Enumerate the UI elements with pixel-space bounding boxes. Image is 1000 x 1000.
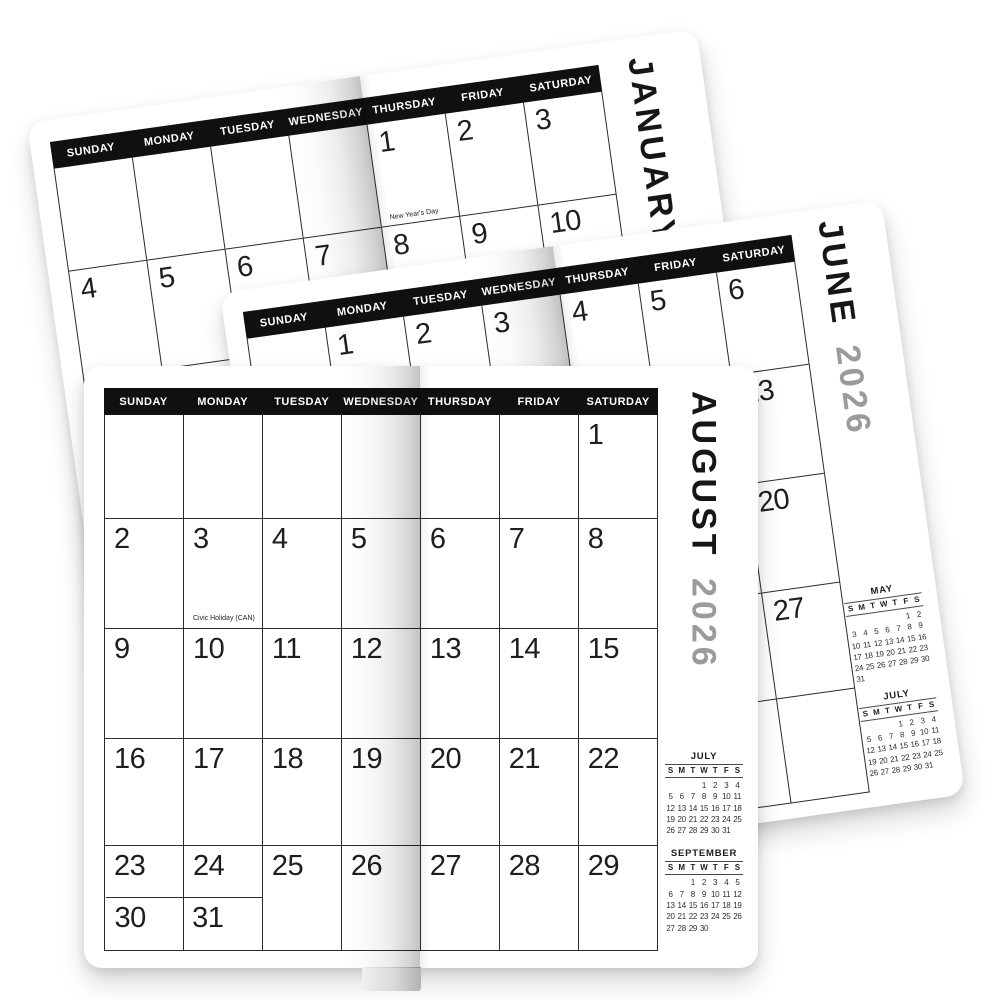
date-cell: 5 [341,519,420,628]
year-label: 2026 [684,578,722,670]
day-header: SATURDAY [579,388,658,415]
holiday-note: Civic Holiday (CAN) [193,615,255,622]
mini-week-row: 12131415161718 [665,803,743,814]
mini-date [676,780,687,791]
date-cell: 15 [578,629,657,738]
mini-date: 24 [721,814,732,825]
mini-date: 24 [710,911,721,922]
mini-date [921,664,934,677]
date-number: 17 [193,745,224,774]
mini-date: 8 [687,889,698,900]
mini-date: 14 [687,803,698,814]
date-number: 13 [430,635,461,664]
mini-date: 23 [710,814,721,825]
mini-date: 4 [721,877,732,888]
mini-date [676,877,687,888]
mini-day-letter: T [687,766,698,775]
mini-day-letter: S [925,699,937,709]
date-number: 4 [79,274,99,305]
mini-date: 31 [721,825,732,836]
mini-date [687,780,698,791]
date-cell: 28 [499,846,578,950]
page-title: JUNE2026 [810,218,877,438]
date-number: 22 [588,745,619,774]
date-cell: 18 [262,739,341,845]
mini-date: 12 [732,889,743,900]
mini-date: 26 [665,825,676,836]
mini-day-letter: S [665,766,676,775]
date-cell: 19 [341,739,420,845]
day-header: SUNDAY [104,388,183,415]
mini-date [710,923,721,934]
date-number: 27 [430,852,461,881]
date-number: 6 [726,275,746,306]
date-cell-overflow: 30 [106,897,185,946]
mini-day-letter: S [911,594,923,604]
mini-date: 10 [710,889,721,900]
date-number: 8 [588,525,604,554]
date-number: 11 [272,635,301,664]
mini-date: 29 [698,825,709,836]
page-title: AUGUST2026 [684,391,721,669]
mini-date: 17 [710,900,721,911]
mini-date: 5 [732,877,743,888]
mini-date: 13 [676,803,687,814]
date-cell [420,415,499,518]
date-number: 23 [114,852,145,881]
mini-date: 27 [665,923,676,934]
mini-calendar-title: JULY [665,751,743,764]
date-number: 18 [272,745,303,774]
date-cell: 11 [262,629,341,738]
mini-date: 6 [676,791,687,802]
week-row: 16 17 18 19 [105,738,657,845]
date-cell: 25 [262,846,341,950]
mini-date: 16 [698,900,709,911]
date-cell [132,147,225,260]
date-number: 3 [193,525,209,554]
date-cell-overflow: 31 [183,897,262,946]
mini-date [732,825,743,836]
date-number: 7 [313,241,333,272]
date-number: 2 [455,116,475,147]
mini-date: 16 [710,803,721,814]
date-cell: 27 [761,583,854,699]
date-number: 28 [509,852,540,881]
mini-day-letter: F [721,863,732,872]
date-cell [210,136,303,249]
mini-date: 11 [732,791,743,802]
date-number: 5 [157,263,177,294]
date-cell: 29 [578,846,657,950]
mini-date: 28 [687,825,698,836]
mini-date: 7 [676,889,687,900]
mini-date: 14 [676,900,687,911]
date-number: 4 [570,297,590,328]
date-cell [183,415,262,518]
mini-date: 8 [698,791,709,802]
date-cell: 16 [105,739,183,845]
date-cell: 12 [341,629,420,738]
mini-day-letter: F [721,766,732,775]
date-number: 31 [192,904,223,933]
date-cell: 2 [105,519,183,628]
mini-date: 23 [698,911,709,922]
mini-weeks: 1234 567891011 12131415161718 [861,711,946,780]
mini-date: 9 [710,791,721,802]
mini-weeks: 12345 6789101112 13141516171819 [665,875,743,933]
mini-calendar: JULY SMTWTFS 1234 56789101 [665,751,743,836]
mini-date: 2 [710,780,721,791]
mini-day-letter: M [676,766,687,775]
date-cell [262,415,341,518]
mini-date: 2 [698,877,709,888]
date-number: 16 [114,745,145,774]
date-cell: 8 [578,519,657,628]
month-title: JANUARY [620,55,684,250]
date-number: 15 [588,635,619,664]
date-cell: 27 [420,846,499,950]
mini-date: 29 [687,923,698,934]
date-number: 1 [377,127,397,158]
date-number: 3 [492,308,512,339]
date-cell: 7 [499,519,578,628]
mini-day-letter: W [698,863,709,872]
mini-week-row: 13141516171819 [665,900,743,911]
page-title: JANUARY [620,55,684,249]
mini-date [665,877,676,888]
mini-day-letter: T [710,863,721,872]
mini-date: 17 [721,803,732,814]
date-number: 19 [351,745,382,774]
date-number: 21 [509,745,540,774]
date-number: 25 [272,852,303,881]
mini-date: 21 [676,911,687,922]
mini-date: 20 [665,911,676,922]
day-header-row: SUNDAYMONDAYTUESDAYWEDNESDAYTHURSDAYFRID… [104,388,658,415]
mini-day-letter: M [676,863,687,872]
mini-day-letters: SMTWTFS [665,764,743,778]
date-number: 1 [336,330,356,361]
mini-date: 10 [721,791,732,802]
mini-date: 9 [698,889,709,900]
date-number: 26 [351,852,382,881]
date-cell: 6 [716,262,809,375]
date-cell: 4 [262,519,341,628]
mini-date: 22 [698,814,709,825]
mini-week-row: 1234 [665,780,743,791]
date-cell: 3 [523,92,616,205]
date-number: 1 [588,421,604,450]
week-row: 2 3 4 5 [105,518,657,628]
booklet-spine-tab [362,967,421,991]
mini-calendar: JULY SMTWTFS 1234 56789101 [857,684,946,780]
date-cell [776,689,869,803]
month-title: AUGUST [684,391,722,559]
day-header: TUESDAY [262,388,341,415]
mini-date [934,758,947,771]
date-number: 3 [533,105,553,136]
date-number: 6 [430,525,446,554]
date-number: 5 [648,286,668,317]
date-number: 29 [588,852,619,881]
mini-day-letter: T [710,766,721,775]
day-header: WEDNESDAY [341,388,420,415]
mini-week-row: 6789101112 [665,889,743,900]
mini-date: 1 [698,780,709,791]
date-number: 7 [509,525,525,554]
day-header: THURSDAY [420,388,499,415]
date-cell [288,125,381,238]
month-grid: 1 2 3 4 [104,415,658,951]
date-cell: 22 [578,739,657,845]
mini-date: 19 [732,900,743,911]
date-number: 5 [351,525,367,554]
date-number: 6 [235,252,255,283]
mini-week-row: 262728293031 [665,825,743,836]
mini-date: 3 [721,780,732,791]
day-header: FRIDAY [499,388,578,415]
mini-date: 25 [721,911,732,922]
date-cell: 1 [366,114,459,227]
week-row: 9 10 11 12 [105,628,657,738]
page-august: SUNDAYMONDAYTUESDAYWEDNESDAYTHURSDAYFRID… [84,366,758,968]
date-cell: 20 [746,474,839,593]
date-cell: 1 [578,415,657,518]
date-number: 20 [756,485,791,518]
mini-date: 22 [687,911,698,922]
date-number: 20 [430,745,461,774]
mini-date: 26 [732,911,743,922]
mini-date: 3 [710,877,721,888]
mini-date: 25 [732,814,743,825]
date-number: 12 [351,635,382,664]
mini-calendar: MAY SMTWTFS 12 3456789 [842,579,933,686]
mini-date [732,923,743,934]
date-number: 4 [272,525,288,554]
mini-day-letter: S [732,863,743,872]
date-cell: 20 [420,739,499,845]
mini-date [665,780,676,791]
date-cell: 4 [69,261,161,380]
date-number: 8 [392,230,412,261]
mini-date: 20 [676,814,687,825]
mini-date: 13 [665,900,676,911]
mini-date: 7 [687,791,698,802]
date-number: 2 [414,319,434,350]
date-cell: 10 [183,629,262,738]
date-cell [499,415,578,518]
date-number: 9 [470,219,490,250]
date-cell: 17 [183,739,262,845]
mini-calendar-title: SEPTEMBER [665,848,743,861]
mini-date: 28 [676,923,687,934]
date-cell [55,158,147,271]
mini-date: 12 [665,803,676,814]
mini-weeks: 12 3456789 10111213141516 [846,606,933,686]
mini-day-letter: S [665,863,676,872]
mini-week-row: 19202122232425 [665,814,743,825]
mini-date: 11 [721,889,732,900]
date-cell: 14 [499,629,578,738]
mini-date: 19 [665,814,676,825]
date-number: 30 [115,904,146,933]
date-cell: 3 [183,519,262,628]
mini-date: 4 [732,780,743,791]
mini-date: 30 [698,923,709,934]
mini-day-letter: W [698,766,709,775]
mini-date: 15 [698,803,709,814]
mini-date: 18 [732,803,743,814]
mini-date: 6 [665,889,676,900]
date-number: 10 [548,206,583,239]
day-header: MONDAY [183,388,262,415]
mini-week-row: 12345 [665,877,743,888]
date-cell [341,415,420,518]
mini-week-row: 27282930 [665,923,743,934]
mini-date: 27 [676,825,687,836]
year-label: 2026 [828,342,878,438]
date-cell: 13 [420,629,499,738]
mini-day-letters: SMTWTFS [665,861,743,875]
date-cell: 21 [499,739,578,845]
mini-date [721,923,732,934]
mini-date: 5 [665,791,676,802]
mini-date: 15 [687,900,698,911]
mini-calendar: SEPTEMBER SMTWTFS 12345 67 [665,848,743,933]
date-cell: 26 [341,846,420,950]
date-cell: 9 [105,629,183,738]
mini-date: 30 [710,825,721,836]
date-number: 24 [193,852,224,881]
date-number: 2 [114,525,130,554]
date-number: 9 [114,635,130,664]
date-number: 27 [772,594,807,627]
date-cell: 2 [445,103,538,216]
week-row: 1 [105,415,657,518]
mini-date: 1 [687,877,698,888]
month-title: JUNE [810,218,862,329]
mini-date: 18 [721,900,732,911]
mini-weeks: 1234 567891011 12131415161718 [665,778,743,836]
mini-week-row: 20212223242526 [665,911,743,922]
mini-date: 21 [687,814,698,825]
mini-week-row: 567891011 [665,791,743,802]
mini-calendars: JULY SMTWTFS 1234 56789101 [665,751,743,934]
date-cell: 6 [420,519,499,628]
mini-day-letter: T [687,863,698,872]
mini-day-letter: S [732,766,743,775]
date-cell [105,415,183,518]
date-number: 10 [193,635,224,664]
date-number: 14 [509,635,540,664]
calendar-pages-composite: SUNDAYMONDAYTUESDAYWEDNESDAYTHURSDAYFRID… [0,0,1000,1000]
